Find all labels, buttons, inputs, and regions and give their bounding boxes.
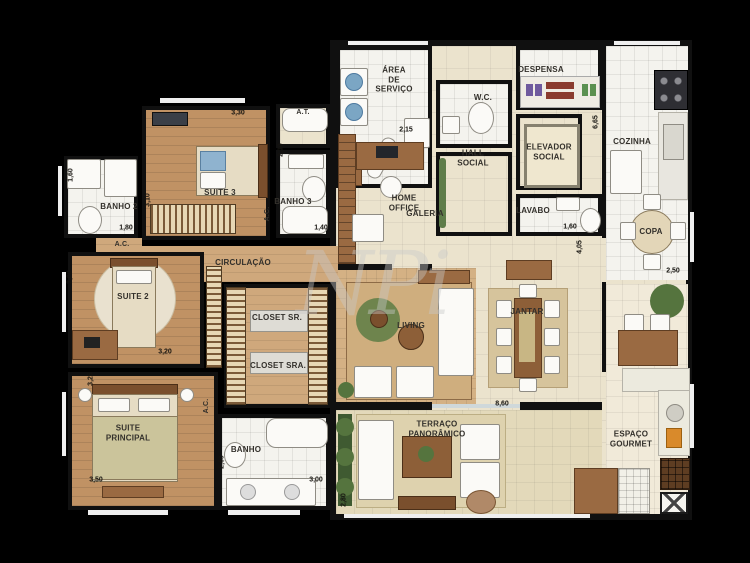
bar-cart-icon: [574, 468, 618, 514]
dim-banho3-top: 2,30: [278, 143, 285, 157]
window: [614, 41, 680, 45]
dim-banho2-bottom: 1,80: [119, 225, 133, 232]
room-label-jantar: JANTAR: [510, 307, 543, 317]
dim-lavabo-bottom: 1,60: [563, 224, 577, 231]
room-label-wc: W.C.: [474, 93, 492, 103]
pillow-icon: [98, 398, 130, 412]
toilet-icon: [580, 208, 601, 233]
stove-icon: [654, 70, 688, 110]
room-label-elevador-social: ELEVADOR SOCIAL: [526, 142, 571, 161]
toilet-icon: [468, 102, 494, 134]
armchair-icon: [354, 366, 392, 398]
mark-ac: A.C.: [264, 207, 272, 222]
chair-icon: [643, 194, 661, 210]
window: [58, 166, 62, 216]
wall-terraco-right: [520, 402, 602, 410]
room-label-suite3: SUITE 3: [204, 188, 236, 198]
armchair-icon: [396, 366, 434, 398]
sink-icon: [666, 404, 684, 422]
wardrobe-icon: [226, 287, 246, 405]
kitchen-sink-icon: [663, 124, 684, 160]
dim-terraco-left: 2,80: [341, 493, 348, 507]
plant-icon: [338, 382, 354, 398]
window: [690, 212, 694, 262]
pantry-item-icon: [546, 82, 574, 89]
mark-at: A.T.: [296, 109, 309, 117]
armchair-icon: [460, 424, 500, 460]
dim-terraco-top: 8,60: [495, 401, 509, 408]
wardrobe-icon: [150, 204, 236, 234]
sink-icon: [442, 116, 460, 134]
sink-icon: [288, 154, 324, 169]
room-label-copa: COPA: [639, 227, 662, 237]
wall-gourmet: [602, 282, 606, 372]
chair-icon: [496, 328, 512, 346]
window: [160, 98, 245, 103]
dim-banho-bottom: 3,00: [309, 477, 323, 484]
monitor-icon: [376, 146, 398, 158]
chair-icon: [544, 328, 560, 346]
chair-icon: [620, 222, 636, 240]
wardrobe-icon: [206, 266, 222, 368]
room-label-espaco-gourmet: ESPAÇO GOURMET: [610, 429, 652, 448]
room-label-circulacao: CIRCULAÇÃO: [215, 258, 271, 268]
window: [348, 41, 428, 45]
window: [228, 510, 300, 515]
pouf-icon: [466, 490, 496, 514]
room-label-lavabo: LAVABO: [516, 206, 550, 216]
chair-icon: [519, 284, 537, 298]
bed-headboard-icon: [258, 144, 268, 198]
dim-suite3-top: 3,30: [231, 110, 245, 117]
room-label-suite-principal: SUITE PRINCIPAL: [106, 423, 150, 442]
sideboard-icon: [398, 496, 456, 510]
chair-icon: [670, 222, 686, 240]
outdoor-sofa-icon: [358, 420, 394, 500]
watermark: NPi: [296, 232, 448, 335]
wall-cozinha: [602, 46, 606, 238]
plant-icon: [650, 284, 684, 318]
sink-icon: [284, 484, 300, 500]
plant-icon: [336, 448, 354, 466]
chair-icon: [544, 356, 560, 374]
washer-door-icon: [345, 103, 363, 121]
nightstand-icon: [78, 388, 92, 402]
sink-icon: [240, 484, 256, 500]
pillow-icon: [200, 172, 226, 189]
dim-suite2-left: 3,00: [67, 270, 74, 284]
window-terraco-rail: [344, 514, 590, 518]
toilet-icon: [78, 206, 102, 234]
dim-banho3-bottom: 1,40: [314, 225, 328, 232]
pantry-item-icon: [546, 92, 574, 99]
pillow-icon: [200, 151, 226, 171]
chair-icon: [544, 300, 560, 318]
room-label-suite2: SUITE 2: [117, 292, 149, 302]
pillow-icon: [138, 398, 170, 412]
sink-counter-icon: [104, 159, 137, 197]
tv-dresser-icon: [152, 112, 188, 126]
pantry-item-icon: [582, 84, 588, 96]
dim-suite-principal-left: 3,25: [88, 372, 95, 386]
window: [690, 384, 694, 448]
dim-cozinha-left: 6,65: [593, 115, 600, 129]
gourmet-counter-icon: [622, 368, 690, 392]
room-label-despensa: DESPENSA: [518, 65, 564, 75]
room-label-home-office: HOME OFFICE: [389, 193, 420, 212]
dim-galeria-right: 4,05: [577, 240, 584, 254]
washer-door-icon: [345, 73, 363, 91]
room-label-banho: BANHO: [231, 445, 261, 455]
room-label-closet-sr: CLOSET SR.: [252, 313, 302, 323]
chair-icon: [519, 378, 537, 392]
pillow-icon: [116, 270, 152, 284]
room-label-banho2: BANHO 2: [100, 202, 137, 212]
gourmet-bar-icon: [618, 330, 678, 366]
room-label-hall-social: HALL SOCIAL: [457, 148, 488, 167]
fridge-icon: [610, 150, 642, 194]
room-label-closet-sra: CLOSET SRA.: [250, 361, 306, 371]
table-runner-icon: [519, 312, 535, 362]
dim-area-servico: 2,15: [399, 127, 413, 134]
window: [88, 510, 168, 515]
pantry-item-icon: [535, 84, 542, 96]
mark-ac: A.C.: [115, 241, 130, 249]
dim-banho2-left: 1,60: [68, 168, 75, 182]
wine-rack-icon: [660, 458, 690, 490]
sink-icon: [556, 197, 580, 211]
window: [62, 392, 66, 456]
utensil-holder-icon: [666, 428, 682, 448]
shaft-icon: [660, 492, 688, 514]
laptop-icon: [84, 337, 100, 348]
room-label-banho3: BANHO 3: [274, 197, 311, 207]
pantry-item-icon: [590, 84, 596, 96]
wall-terraco-left: [336, 402, 432, 410]
sideboard-icon: [506, 260, 552, 280]
window: [62, 272, 66, 332]
room-label-terraco: TERRAÇO PANORÂMICO: [409, 419, 466, 438]
mark-ac: A.C.: [203, 399, 211, 414]
shelf-icon: [618, 468, 650, 514]
dim-suite2-bottom: 3,20: [158, 349, 172, 356]
dim-suite3-left: 3,10: [145, 193, 152, 207]
dim-banho-left: 2,60: [219, 455, 226, 469]
room-label-cozinha: COZINHA: [613, 137, 651, 147]
room-label-area-servico: ÁREA DE SERVIÇO: [375, 66, 412, 95]
plant-icon: [336, 418, 354, 436]
bench-icon: [102, 486, 164, 498]
plant-icon: [418, 446, 434, 462]
floor-plan: BANHO 2 SUITE 3 BANHO 3 CIRCULAÇÃO SUITE…: [0, 0, 750, 563]
nightstand-icon: [180, 388, 194, 402]
pantry-item-icon: [526, 84, 533, 96]
dim-copa-bottom: 2,50: [666, 268, 680, 275]
dim-suite-principal-bottom: 3,50: [89, 477, 103, 484]
chair-icon: [643, 254, 661, 270]
tub-icon: [266, 418, 328, 448]
chair-icon: [496, 356, 512, 374]
